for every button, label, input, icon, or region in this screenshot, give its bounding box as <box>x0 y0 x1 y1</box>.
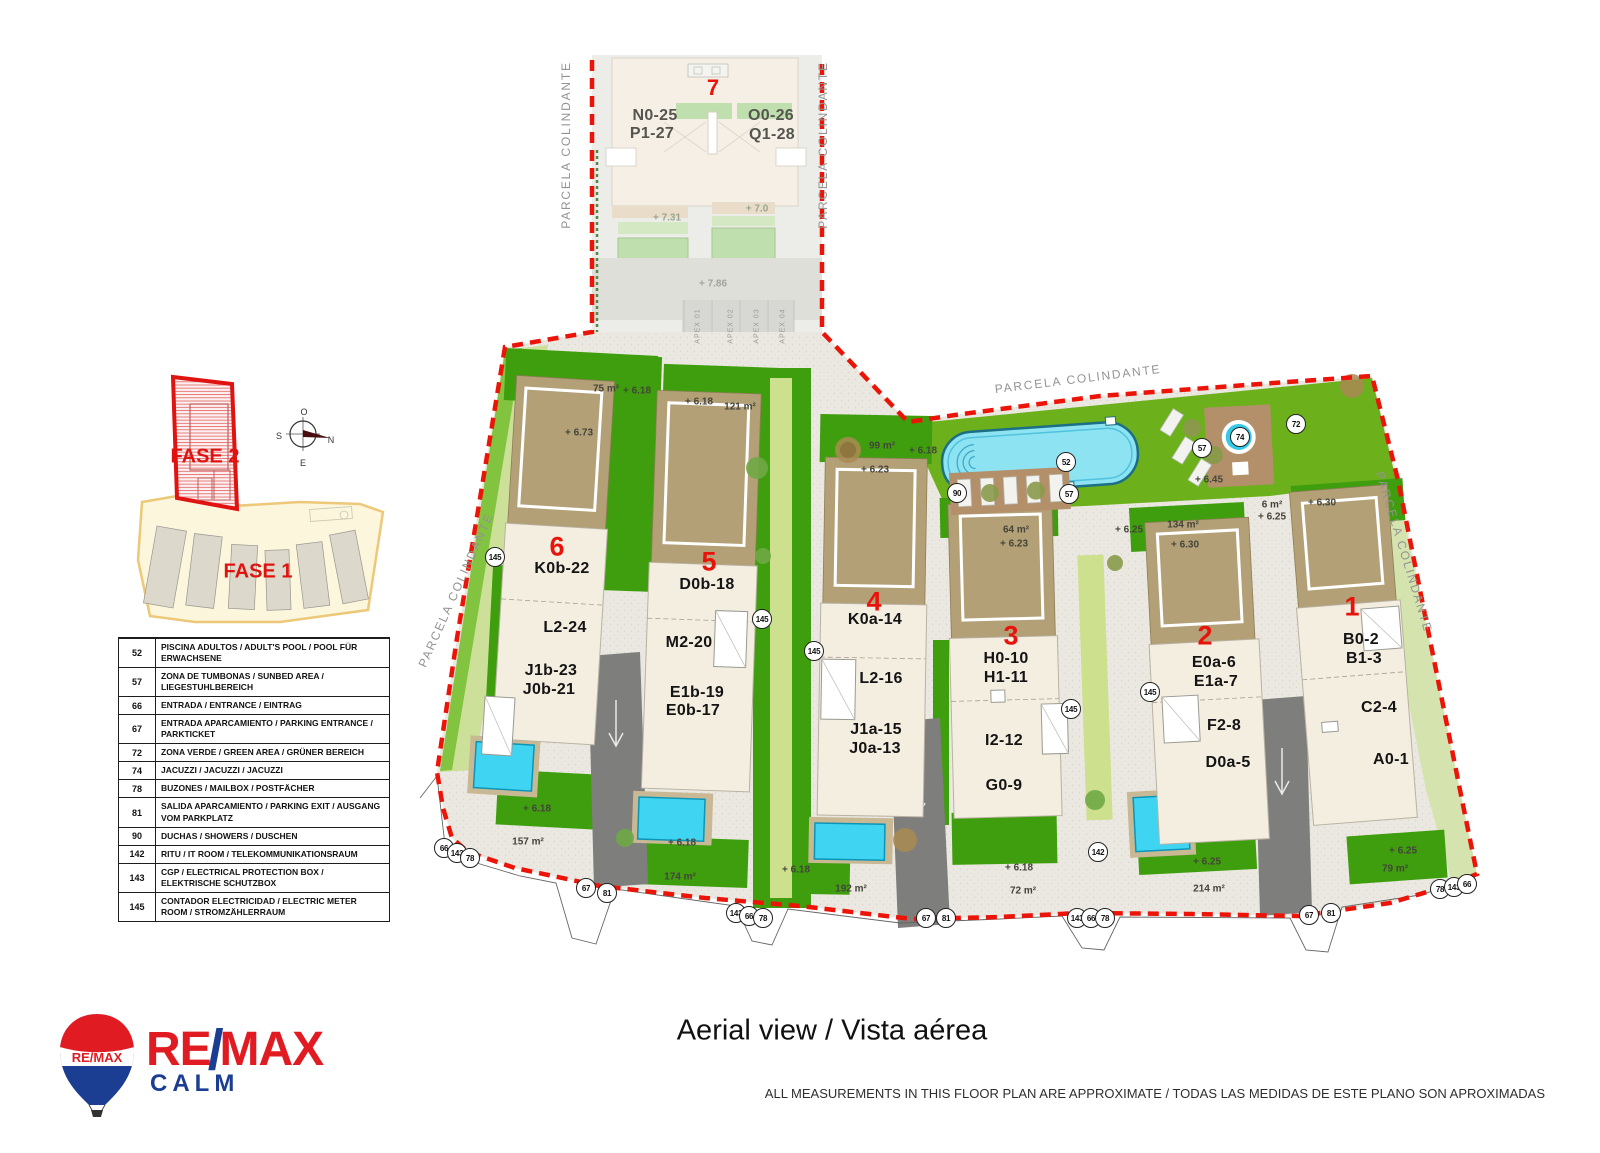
legend-description: ZONA VERDE / GREEN AREA / GRÜNER BEREICH <box>156 744 389 761</box>
legend-description: DUCHAS / SHOWERS / DUSCHEN <box>156 828 389 845</box>
legend-number: 52 <box>119 639 156 667</box>
wordmark-max: MAX <box>220 1023 324 1076</box>
legend-row: 67 ENTRADA APARCAMIENTO / PARKING ENTRAN… <box>119 714 389 743</box>
legend-number: 74 <box>119 762 156 779</box>
building-block-4 <box>808 457 929 865</box>
building-7-block <box>592 55 822 345</box>
sunbed-deck <box>949 467 1071 515</box>
legend-row: 142 RITU / IT ROOM / TELEKOMMUNIKATIONSR… <box>119 845 389 863</box>
legend-description: JACUZZI / JACUZZI / JACUZZI <box>156 762 389 779</box>
legend-row: 78 BUZONES / MAILBOX / POSTFÄCHER <box>119 779 389 797</box>
compass-south-letter: S <box>276 431 282 441</box>
legend-description: ENTRADA / ENTRANCE / EINTRAG <box>156 697 389 714</box>
legend-number: 145 <box>119 893 156 921</box>
remax-office-name: CALM <box>150 1070 239 1098</box>
remax-balloon-icon: RE/MAX <box>58 1012 136 1117</box>
corridor-path <box>770 378 792 898</box>
legend-row: 74 JACUZZI / JACUZZI / JACUZZI <box>119 761 389 779</box>
legend-number: 57 <box>119 668 156 696</box>
legend-row: 57 ZONA DE TUMBONAS / SUNBED AREA / LIEG… <box>119 667 389 696</box>
legend-row: 72 ZONA VERDE / GREEN AREA / GRÜNER BERE… <box>119 743 389 761</box>
legend-description: RITU / IT ROOM / TELEKOMMUNIKATIONSRAUM <box>156 846 389 863</box>
legend-number: 143 <box>119 864 156 892</box>
legend-row: 66 ENTRADA / ENTRANCE / EINTRAG <box>119 696 389 714</box>
page-title: Aerial view / Vista aérea <box>677 1015 988 1048</box>
legend-row: 81 SALIDA APARCAMIENTO / PARKING EXIT / … <box>119 797 389 826</box>
compass-north-letter: N <box>328 435 335 445</box>
legend-number: 67 <box>119 715 156 743</box>
legend-number: 78 <box>119 780 156 797</box>
legend-description: ZONA DE TUMBONAS / SUNBED AREA / LIEGEST… <box>156 668 389 696</box>
balloon-wordmark: RE/MAX <box>72 1050 123 1065</box>
fase2-label: FASE 2 <box>171 446 240 469</box>
legend-row: 90 DUCHAS / SHOWERS / DUSCHEN <box>119 827 389 845</box>
legend-description: SALIDA APARCAMIENTO / PARKING EXIT / AUS… <box>156 798 389 826</box>
legend-description: CGP / ELECTRICAL PROTECTION BOX / ELEKTR… <box>156 864 389 892</box>
fase1-label: FASE 1 <box>224 561 293 584</box>
compass-needle <box>303 430 330 438</box>
wordmark-re: RE <box>146 1023 211 1076</box>
legend-row: 145 CONTADOR ELECTRICIDAD / ELECTRIC MET… <box>119 892 389 921</box>
compass-east-letter: E <box>300 458 306 468</box>
compass <box>286 417 330 451</box>
legend-description: BUZONES / MAILBOX / POSTFÄCHER <box>156 780 389 797</box>
legend-description: ENTRADA APARCAMIENTO / PARKING ENTRANCE … <box>156 715 389 743</box>
pool-building-5 <box>638 797 705 841</box>
jacuzzi <box>1204 404 1274 487</box>
legend-number: 81 <box>119 798 156 826</box>
legend-description: CONTADOR ELECTRICIDAD / ELECTRIC METER R… <box>156 893 389 921</box>
compass-west-letter: O <box>300 407 307 417</box>
pool-building-4 <box>814 823 885 860</box>
mini-map-fase2 <box>173 377 237 509</box>
disclaimer-text: ALL MEASUREMENTS IN THIS FLOOR PLAN ARE … <box>765 1086 1545 1101</box>
legend-number: 90 <box>119 828 156 845</box>
site-plan-page: RE/MAX PARCELA COLINDANTEPARCELA COLINDA… <box>0 0 1600 1153</box>
building-block-3 <box>946 501 1070 818</box>
legend-table: 52 PISCINA ADULTOS / ADULT'S POOL / POOL… <box>118 637 390 922</box>
legend-number: 66 <box>119 697 156 714</box>
mini-map-fase1 <box>138 496 383 622</box>
legend-number: 72 <box>119 744 156 761</box>
legend-row: 52 PISCINA ADULTOS / ADULT'S POOL / POOL… <box>119 638 389 667</box>
legend-description: PISCINA ADULTOS / ADULT'S POOL / POOL FÜ… <box>156 639 389 667</box>
legend-row: 143 CGP / ELECTRICAL PROTECTION BOX / EL… <box>119 863 389 892</box>
legend-number: 142 <box>119 846 156 863</box>
